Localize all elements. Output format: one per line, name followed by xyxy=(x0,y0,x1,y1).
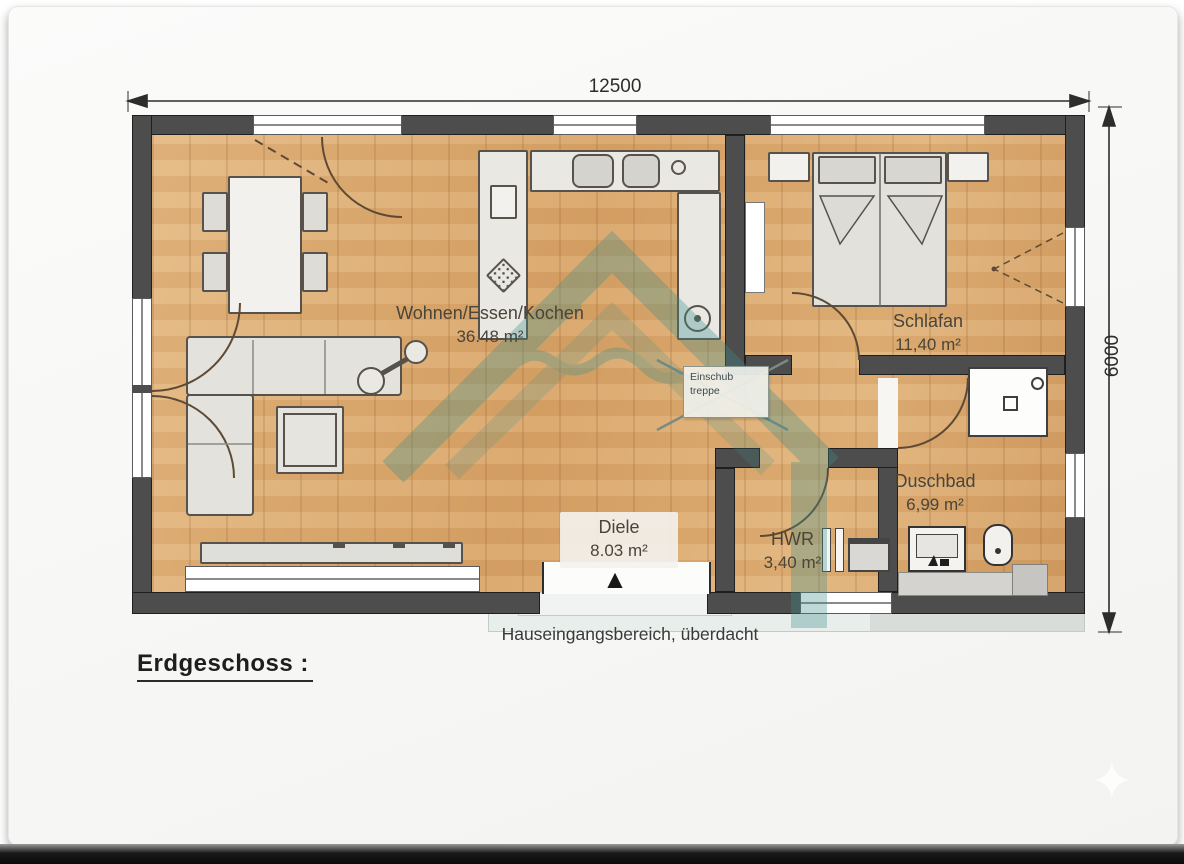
room-name: Diele xyxy=(560,516,678,539)
room-area: 6,99 m² xyxy=(906,495,964,514)
room-name: Duschbad xyxy=(870,470,1000,493)
attic-stair-line2: treppe xyxy=(690,385,768,399)
plan-linework xyxy=(0,0,1184,864)
dimension-depth-label: 6000 xyxy=(1102,321,1124,391)
attic-stair-label: Einschub treppe xyxy=(683,366,769,418)
room-label-bedroom: Schlafan 11,40 m² xyxy=(858,310,998,356)
room-name: HWR xyxy=(735,528,850,551)
room-label-hwr: HWR 3,40 m² xyxy=(735,528,850,574)
room-label-hall: Diele 8.03 m² xyxy=(560,516,678,562)
room-label-living: Wohnen/Essen/Kochen 36.48 m² xyxy=(360,302,620,348)
room-area: 8.03 m² xyxy=(590,541,648,560)
floorplan-page: ✦ ▲ xyxy=(0,0,1184,864)
room-label-bath: Duschbad 6,99 m² xyxy=(870,470,1000,516)
dimension-width-label: 12500 xyxy=(555,76,675,98)
entrance-arrow-icon: ▲ xyxy=(599,566,631,592)
room-name: Schlafan xyxy=(858,310,998,333)
floor-title: Erdgeschoss : xyxy=(137,650,313,682)
attic-stair-line1: Einschub xyxy=(690,371,768,385)
room-name: Wohnen/Essen/Kochen xyxy=(360,302,620,325)
room-area: 11,40 m² xyxy=(895,335,961,354)
room-area: 36.48 m² xyxy=(456,327,523,346)
room-area: 3,40 m² xyxy=(764,553,822,572)
entrance-note: Hauseingangsbereich, überdacht xyxy=(430,624,830,645)
bed-details xyxy=(820,153,942,306)
